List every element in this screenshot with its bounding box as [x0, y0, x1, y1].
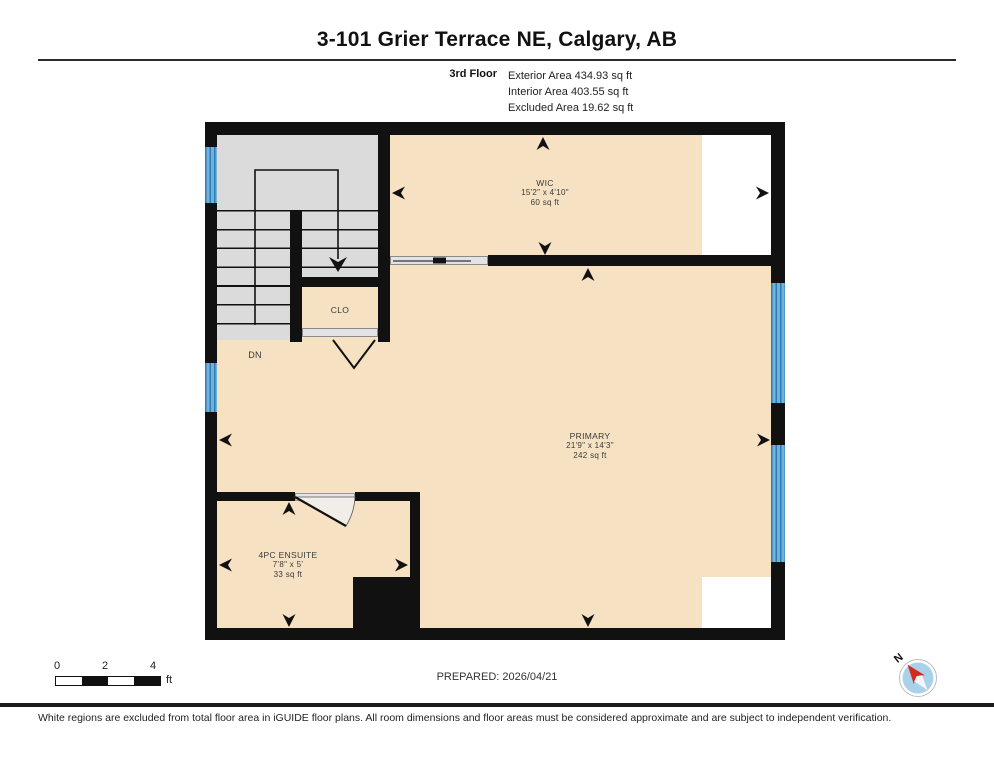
wall-wic-bottom [488, 255, 771, 266]
room-label-primary: PRIMARY 21'9" x 14'3" 242 sq ft [530, 431, 650, 461]
floor-label: 3rd Floor [0, 68, 497, 80]
room-area: 242 sq ft [530, 451, 650, 461]
scale-unit: ft [166, 674, 172, 686]
footer-divider [0, 703, 994, 707]
scale-segment [56, 677, 82, 685]
room-name: 4PC ENSUITE [228, 550, 348, 560]
scale-tick-0: 0 [49, 660, 65, 672]
disclaimer-text: White regions are excluded from total fl… [38, 712, 968, 724]
scale-bar [55, 676, 161, 686]
ensuite-door-sill [295, 493, 355, 501]
window-right-lower [771, 445, 785, 562]
room-area: 60 sq ft [485, 198, 605, 208]
closet-door-sill [302, 328, 378, 337]
wall-stair-mid [290, 210, 302, 342]
room-label-wic: WIC 15'2" x 4'10" 60 sq ft [485, 178, 605, 208]
stair-flight-right [302, 210, 378, 277]
chase-void [353, 577, 420, 628]
area-summary: Exterior Area 434.93 sq ft Interior Area… [508, 68, 633, 116]
page-title: 3-101 Grier Terrace NE, Calgary, AB [0, 28, 994, 52]
stair-flight-left [217, 210, 290, 340]
wall-stair-wic-divider [378, 135, 390, 342]
room-label-closet: CLO [310, 305, 370, 315]
room-name: CLO [310, 305, 370, 315]
wall-outer-bottom [205, 628, 785, 640]
excluded-region-top-right [702, 135, 771, 255]
scale-segment [82, 677, 108, 685]
room-name: PRIMARY [530, 431, 650, 441]
scale-tick-2: 2 [97, 660, 113, 672]
excluded-area: Excluded Area 19.62 sq ft [508, 100, 633, 116]
wall-ensuite-right [410, 492, 420, 582]
stair-landing [217, 135, 378, 210]
room-label-ensuite: 4PC ENSUITE 7'8" x 5' 33 sq ft [228, 550, 348, 580]
sliding-door-sill [390, 256, 488, 265]
scale-tick-4: 4 [145, 660, 161, 672]
excluded-region-bottom-right [702, 577, 771, 628]
room-name: WIC [485, 178, 605, 188]
room-dimensions: 21'9" x 14'3" [530, 441, 650, 451]
compass-north-label: N [892, 651, 906, 665]
title-divider [38, 59, 956, 61]
room-dimensions: 7'8" x 5' [228, 560, 348, 570]
stairs-dn-label: DN [240, 350, 270, 360]
wall-ensuite-top-left [217, 492, 295, 501]
floorplan: WIC 15'2" x 4'10" 60 sq ft PRIMARY 21'9"… [205, 122, 785, 640]
wall-outer-top [205, 122, 785, 135]
exterior-area: Exterior Area 434.93 sq ft [508, 68, 633, 84]
window-left-top [205, 147, 217, 203]
interior-area: Interior Area 403.55 sq ft [508, 84, 633, 100]
wall-closet-top [302, 277, 378, 287]
room-area: 33 sq ft [228, 570, 348, 580]
scale-segment [134, 677, 160, 685]
window-left-mid [205, 363, 217, 412]
compass: N [886, 644, 948, 706]
scale-segment [108, 677, 134, 685]
prepared-date: PREPARED: 2026/04/21 [347, 671, 647, 683]
window-right-upper [771, 283, 785, 403]
room-dimensions: 15'2" x 4'10" [485, 188, 605, 198]
